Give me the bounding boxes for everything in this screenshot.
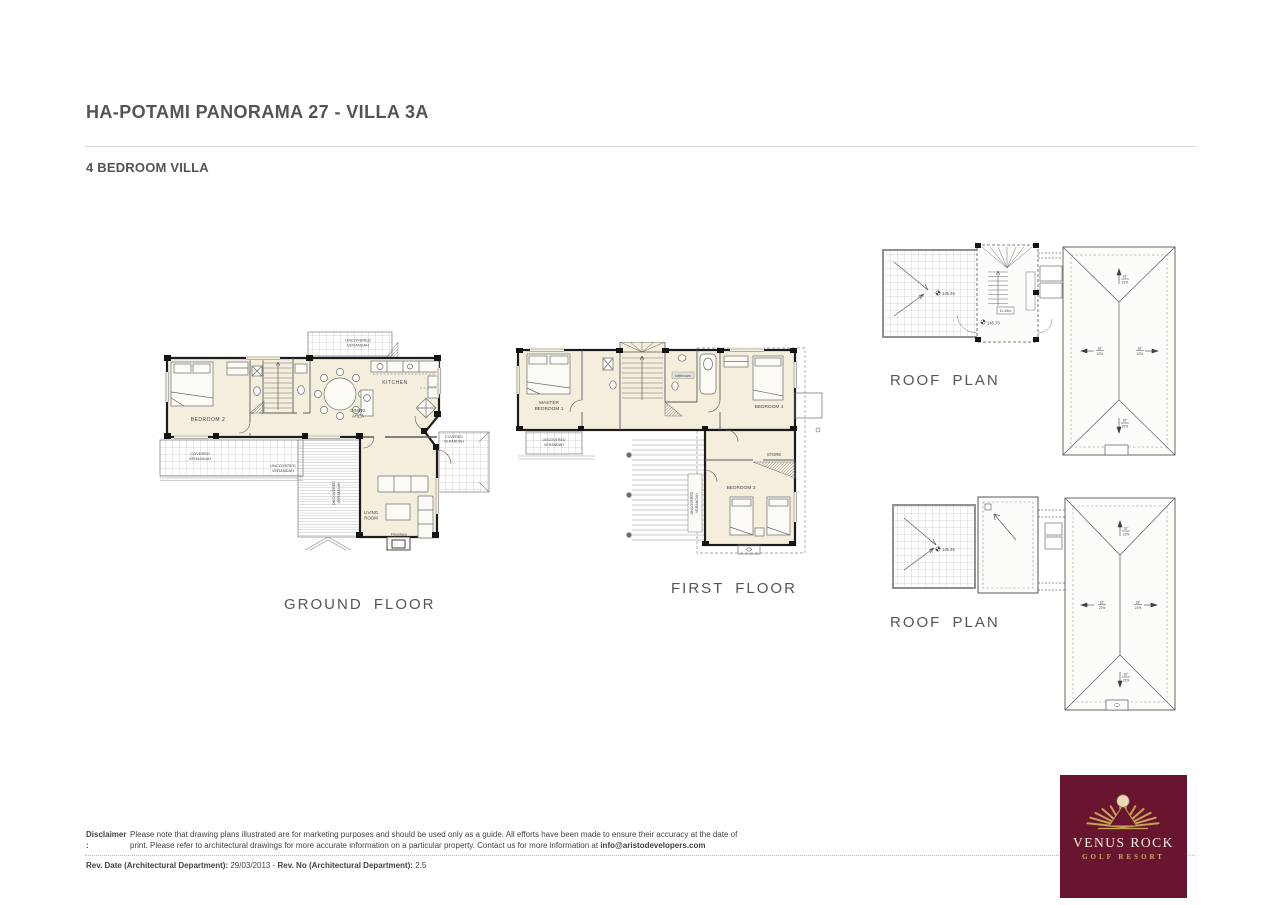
ff-store-label: STORE	[767, 452, 782, 457]
gf-pergola	[298, 440, 360, 550]
ff-master-bed	[527, 354, 570, 394]
rev-no-label: Rev. No (Architectural Department):	[278, 861, 413, 870]
ff-bathroom-label: bathroom	[675, 374, 690, 378]
ground-floor-plan: BEDROOM 2 KITCHEN DINING AREA LIVING ROO…	[158, 328, 492, 573]
roof-upper-slope-grade-bottom: 22%	[1122, 425, 1129, 429]
ff-bedroom3-label: BEDROOM 3	[727, 485, 756, 491]
roof-lower-slope-grade-left: 22%	[1099, 606, 1106, 610]
rev-no-value: 2.5	[415, 861, 426, 870]
roof-lower-slope-angle-top: 16°	[1124, 527, 1130, 531]
roof-lower-slope-grade-right: 22%	[1135, 606, 1142, 610]
gf-living-label-1: LIVING	[364, 510, 379, 515]
disclaimer-text: Please note that drawing plans illustrat…	[130, 829, 746, 851]
title-divider	[85, 146, 1196, 147]
ff-verandah-small-label-2: VERANDAH	[544, 443, 564, 447]
roof-plan-upper-caption: ROOF PLAN	[890, 372, 1000, 389]
rev-dash: -	[273, 861, 276, 870]
roof-upper-slope-angle-top: 16°	[1123, 275, 1129, 279]
gf-veranda-top-label-2: VERANDAH	[347, 343, 369, 348]
roof-upper-level-top: 145.45	[942, 291, 955, 296]
roof-upper-slope-angle-bottom: 16°	[1123, 419, 1129, 423]
disclaimer: Disclaimer : Please note that drawing pl…	[86, 829, 746, 851]
disclaimer-email: info@aristodevelopers.com	[600, 841, 705, 850]
gf-veranda-right-label-1: COVERED	[445, 435, 463, 439]
venus-rock-logo: VENUS ROCK GOLF RESORT	[1060, 775, 1187, 898]
rev-date-label: Rev. Date (Architectural Department):	[86, 861, 228, 870]
roof-lower-level: 145.45	[942, 547, 955, 552]
gf-bedroom2-label: BEDROOM 2	[191, 417, 226, 423]
logo-emblem-icon	[1060, 789, 1187, 835]
roof-plans: 145.45 11.44m 145.70	[876, 240, 1188, 732]
ground-floor-caption: GROUND FLOOR	[284, 596, 436, 613]
rev-date-value: 29/03/2013	[230, 861, 270, 870]
gf-covered-verandah-left	[160, 440, 303, 481]
gf-dining-label-2: AREA	[352, 414, 364, 419]
logo-name: VENUS ROCK	[1060, 835, 1187, 851]
gf-veranda-right-label-2: VERANDAH	[444, 440, 464, 444]
roof-plan-lower-caption: ROOF PLAN	[890, 614, 1000, 631]
plan-sheet: { "header": { "title": "HA-POTAMI PANORA…	[0, 0, 1280, 905]
gf-kitchen-label: KITCHEN	[382, 380, 407, 386]
roof-upper-slope-angle-left: 16°	[1098, 347, 1104, 351]
roof-lower-slope-angle-bottom: 16°	[1124, 673, 1130, 677]
roof-lower-slope-angle-left: 16°	[1100, 601, 1106, 605]
roof-upper-slope-grade-left: 22%	[1097, 352, 1104, 356]
gf-veranda-left-label-2: VERANDAH	[189, 456, 211, 461]
ff-master-label-2: BEDROOM 1	[535, 406, 564, 412]
roof-plan-lower: 145.45 16° 22% 16	[893, 497, 1175, 710]
gf-veranda-bottom-label-2: VERANDAH	[272, 468, 294, 473]
disclaimer-label: Disclaimer :	[86, 829, 130, 851]
ff-master-label-1: MASTER	[539, 400, 560, 406]
roof-upper-stair-dim: 11.44m	[1000, 309, 1012, 313]
footer-divider	[85, 855, 1195, 856]
gf-living-label-2: ROOM	[364, 516, 378, 521]
first-floor-caption: FIRST FLOOR	[671, 580, 797, 597]
roof-upper-slope-angle-right: 16°	[1138, 347, 1144, 351]
page-title: HA-POTAMI PANORAMA 27 - VILLA 3A	[86, 102, 429, 123]
disclaimer-line2: Please refer to architectural drawings f…	[150, 841, 598, 850]
first-floor-plan: MASTER BEDROOM 1 bathroom BEDROOM 4 STOR…	[512, 342, 832, 567]
ff-bedroom4-label: BEDROOM 4	[755, 404, 784, 410]
ff-stair-bay	[620, 342, 665, 352]
gf-dining-label-1: DINING	[350, 408, 366, 413]
gf-fireplace	[387, 537, 410, 550]
roof-upper-level-mid: 145.70	[987, 321, 1000, 326]
ff-verandah-small-label-1: UNCOVERED	[543, 438, 566, 442]
gf-pergola-label-1: UNCOVERED	[332, 481, 336, 506]
revision-line: Rev. Date (Architectural Department): 29…	[86, 861, 426, 870]
roof-plan-upper: 145.45 11.44m 145.70	[883, 243, 1175, 455]
roof-lower-slope-grade-top: 22%	[1123, 533, 1130, 537]
gf-pergola-label-2: VERANDAH	[337, 482, 341, 503]
logo-tagline: GOLF RESORT	[1060, 853, 1187, 861]
roof-upper-slope-grade-right: 22%	[1137, 352, 1144, 356]
ff-verandah-vertical-label-2: VERANDAH	[695, 493, 699, 513]
roof-upper-slope-grade-top: 22%	[1122, 281, 1129, 285]
roof-lower-slope-grade-bottom: 22%	[1123, 679, 1130, 683]
gf-fireplace-label: Fireplace	[391, 532, 408, 537]
ff-verandah-vertical-label-1: UNCOVERED	[690, 491, 694, 514]
page-subtitle: 4 BEDROOM VILLA	[86, 160, 209, 175]
roof-lower-slope-angle-right: 16°	[1136, 601, 1142, 605]
